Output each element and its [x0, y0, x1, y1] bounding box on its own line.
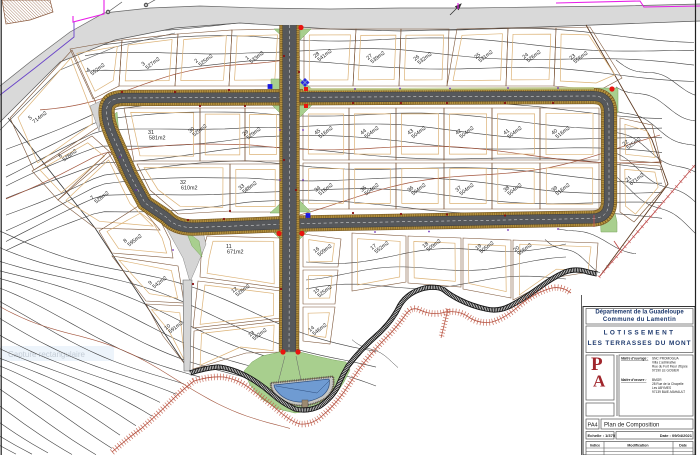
svg-text:Echelle : 1/375: Echelle : 1/375: [588, 433, 616, 438]
svg-text:LES TERRASSES DU MONT: LES TERRASSES DU MONT: [588, 340, 692, 347]
svg-text:LOTISSEMENT: LOTISSEMENT: [604, 330, 676, 337]
svg-text:Date: Date: [679, 444, 687, 448]
svg-text:Indice: Indice: [590, 444, 600, 448]
svg-text:97139 BAIE-MAHAULT: 97139 BAIE-MAHAULT: [652, 390, 685, 394]
svg-text:Date : 09/04/2021: Date : 09/04/2021: [660, 433, 693, 438]
svg-text:Maître d'oeuvre :: Maître d'oeuvre :: [621, 378, 646, 382]
svg-text:PA4: PA4: [588, 423, 598, 429]
svg-text:97190 LE GOSIER: 97190 LE GOSIER: [652, 369, 680, 373]
svg-text:Modification: Modification: [627, 444, 648, 448]
svg-text:Maître d'ouvrage :: Maître d'ouvrage :: [621, 357, 648, 361]
svg-text:A: A: [593, 372, 606, 391]
svg-text:Département de la Guadeloupe: Département de la Guadeloupe: [595, 310, 684, 316]
svg-text:Plan de Composition: Plan de Composition: [604, 423, 659, 429]
svg-text:Commune du Lamentin: Commune du Lamentin: [603, 317, 676, 323]
